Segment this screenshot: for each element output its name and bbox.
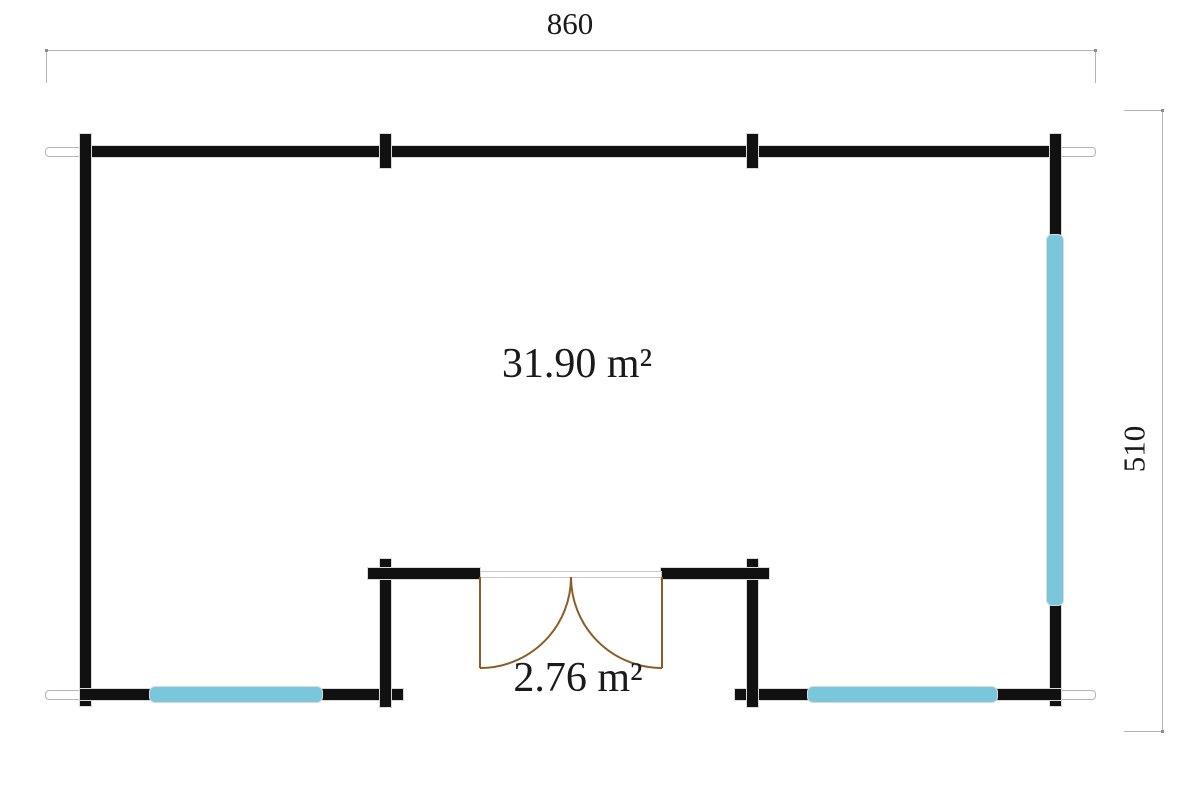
log-end-bottom-right — [1060, 690, 1096, 700]
window-right — [1047, 235, 1063, 605]
door-threshold — [480, 571, 662, 578]
wall-post-top-right — [747, 134, 758, 168]
dimension-tick — [45, 49, 48, 52]
dimension-tick — [1161, 109, 1164, 112]
width-dimension-line — [46, 50, 1095, 51]
width-dimension-extension-left — [46, 50, 47, 83]
log-end-bottom-left — [45, 690, 81, 700]
width-dimension-label: 860 — [547, 8, 594, 39]
wall-inner-front-left — [368, 568, 480, 579]
width-dimension-extension-right — [1095, 50, 1096, 83]
window-bottom-right — [808, 687, 997, 702]
window-bottom-left — [150, 687, 322, 702]
wall-inner-front-right — [661, 568, 769, 579]
wall-left — [80, 134, 91, 706]
dimension-tick — [1094, 49, 1097, 52]
depth-dimension-line — [1162, 110, 1163, 731]
wall-top — [80, 146, 1061, 157]
log-end-top-left — [45, 147, 81, 157]
depth-dimension-extension-bottom — [1124, 731, 1162, 732]
wall-porch-right — [747, 559, 758, 707]
main-room-area-label: 31.90 m² — [502, 343, 652, 385]
dimension-tick — [1161, 730, 1164, 733]
wall-post-top-left — [380, 134, 391, 168]
depth-dimension-extension-top — [1124, 110, 1162, 111]
wall-porch-left — [380, 559, 391, 707]
floor-plan-canvas: 860 510 31.90 m² 2.76 m² — [0, 0, 1200, 785]
depth-dimension-label: 510 — [1119, 426, 1150, 473]
log-end-top-right — [1060, 147, 1096, 157]
porch-area-label: 2.76 m² — [513, 657, 642, 699]
